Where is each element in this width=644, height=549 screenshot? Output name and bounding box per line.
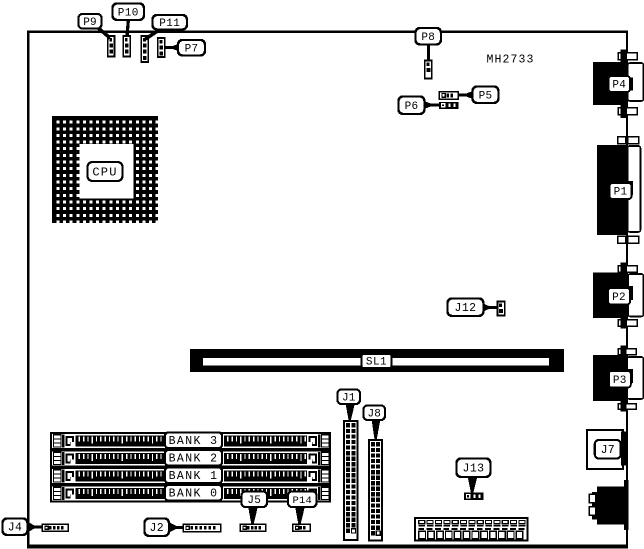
svg-text:J13: J13 bbox=[463, 463, 485, 476]
svg-text:J12: J12 bbox=[455, 302, 477, 315]
svg-text:J5: J5 bbox=[247, 495, 261, 507]
svg-text:P1: P1 bbox=[614, 187, 628, 199]
svg-text:BANK 1: BANK 1 bbox=[169, 470, 219, 483]
svg-text:J8: J8 bbox=[367, 408, 381, 420]
svg-text:P10: P10 bbox=[118, 7, 139, 19]
svg-text:BANK 3: BANK 3 bbox=[169, 435, 219, 448]
svg-text:BANK 2: BANK 2 bbox=[169, 453, 219, 466]
svg-text:P8: P8 bbox=[421, 32, 435, 44]
svg-text:J7: J7 bbox=[601, 444, 615, 457]
svg-text:P4: P4 bbox=[612, 80, 626, 92]
svg-text:P6: P6 bbox=[405, 101, 419, 113]
svg-text:BANK 0: BANK 0 bbox=[169, 488, 219, 501]
svg-text:J1: J1 bbox=[342, 392, 356, 404]
svg-text:J4: J4 bbox=[8, 522, 22, 535]
svg-text:P7: P7 bbox=[185, 43, 199, 55]
svg-text:CPU: CPU bbox=[92, 166, 117, 180]
svg-text:P5: P5 bbox=[479, 90, 493, 102]
svg-text:P14: P14 bbox=[292, 495, 312, 507]
svg-text:MH2733: MH2733 bbox=[487, 54, 535, 67]
svg-text:P2: P2 bbox=[612, 292, 626, 304]
svg-text:P3: P3 bbox=[613, 375, 627, 387]
svg-text:P9: P9 bbox=[83, 17, 97, 29]
svg-text:P11: P11 bbox=[159, 18, 180, 30]
svg-text:SL1: SL1 bbox=[366, 357, 387, 369]
svg-text:J2: J2 bbox=[150, 522, 164, 535]
